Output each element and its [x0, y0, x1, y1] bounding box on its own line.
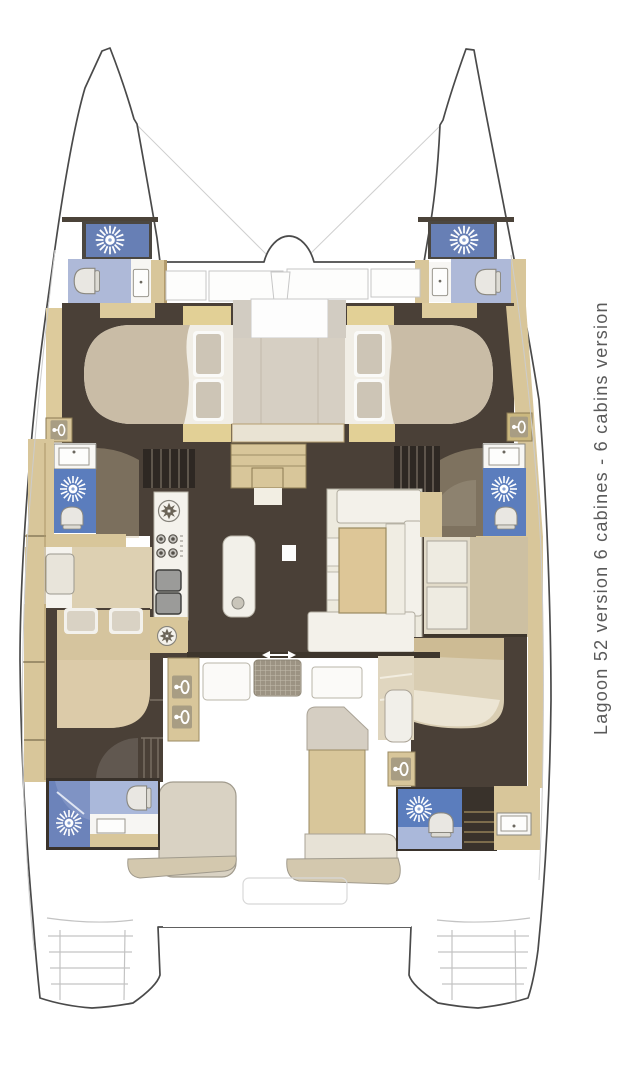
svg-text:Lagoon 52 version 6 cabines -: Lagoon 52 version 6 cabines - 6 cabins v… — [591, 301, 611, 735]
